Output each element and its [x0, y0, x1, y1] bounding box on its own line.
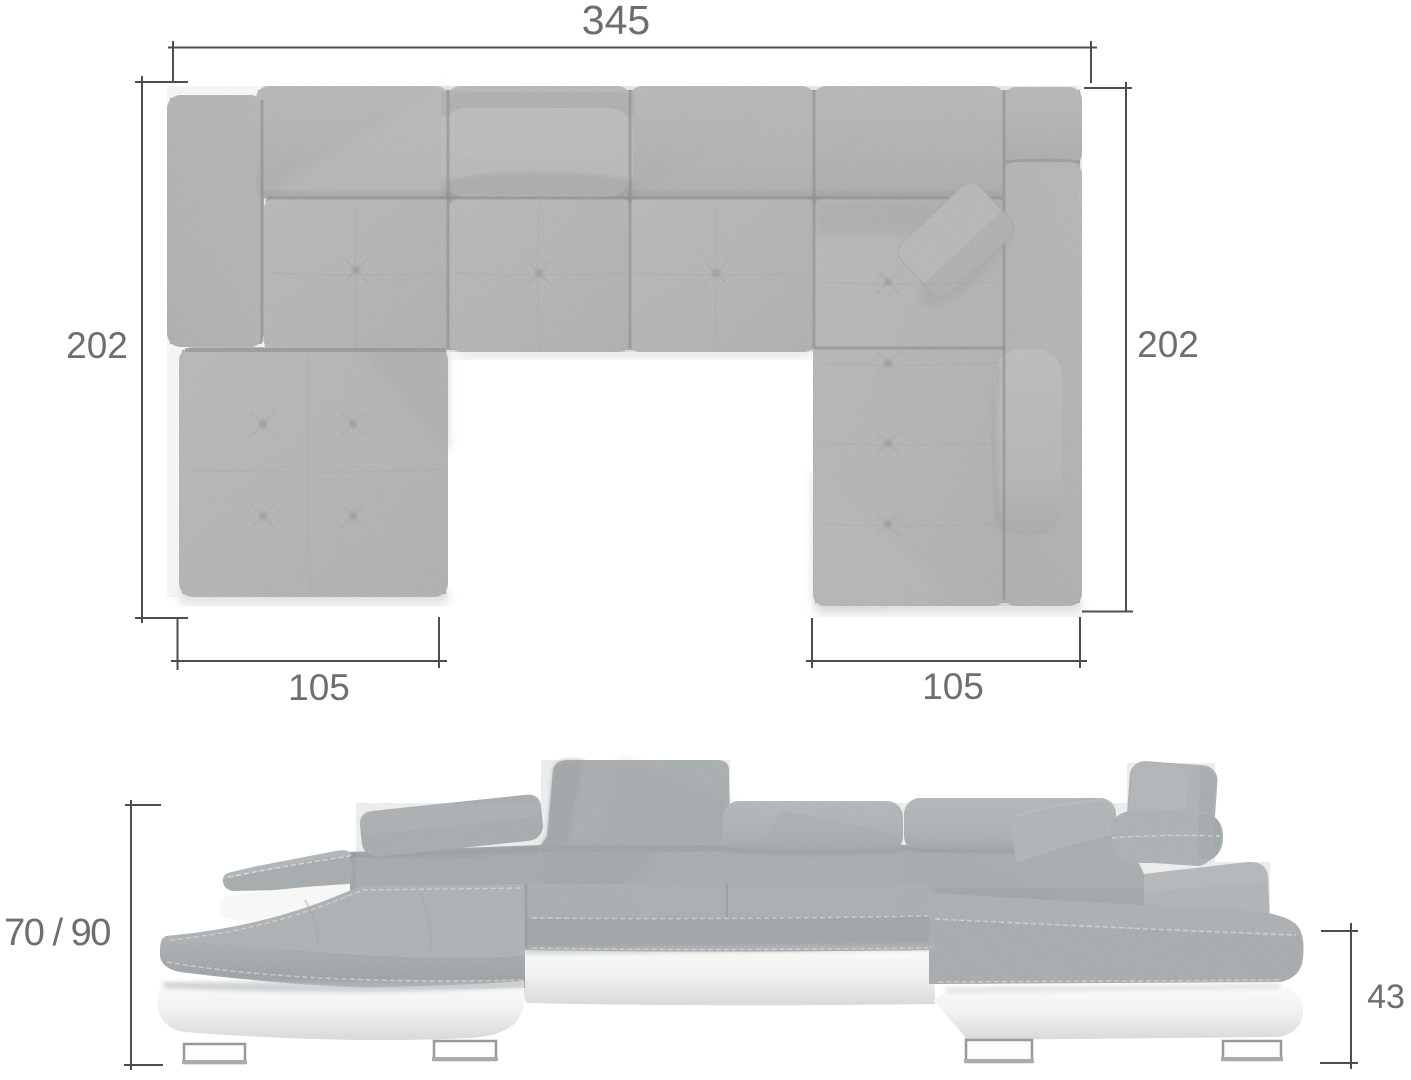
- svg-text:105: 105: [922, 666, 984, 707]
- svg-text:43: 43: [1367, 978, 1405, 1016]
- svg-text:202: 202: [66, 325, 128, 366]
- svg-text:70 / 90: 70 / 90: [4, 912, 110, 954]
- svg-text:345: 345: [582, 0, 650, 43]
- svg-text:202: 202: [1137, 324, 1199, 365]
- svg-text:105: 105: [288, 667, 350, 708]
